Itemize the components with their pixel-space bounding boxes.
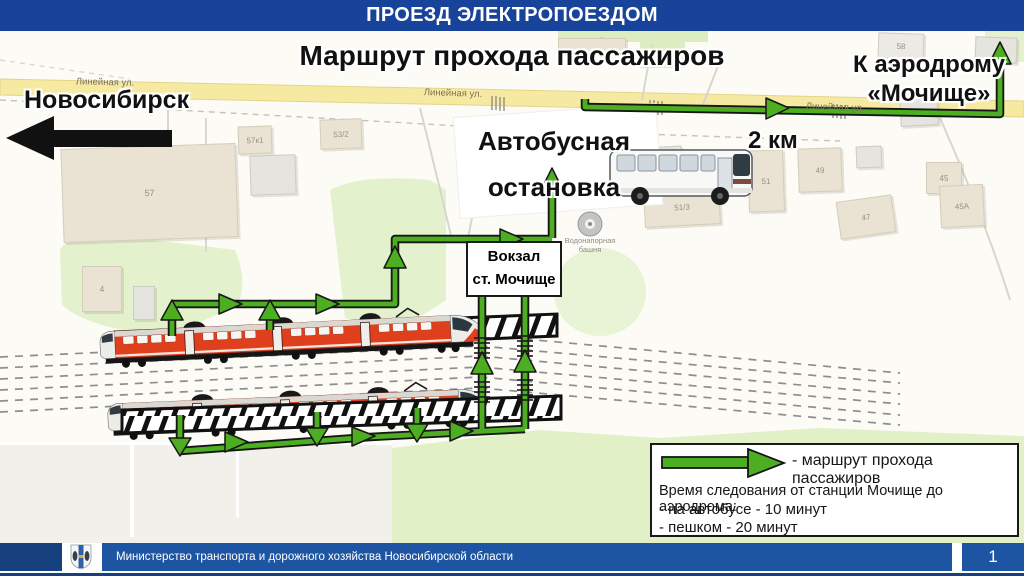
coat-of-arms-icon <box>68 544 94 570</box>
city-direction-label: Новосибирск <box>24 86 189 115</box>
bus-stop-line-2: остановка <box>458 164 650 210</box>
legend-route-arrow-icon <box>660 448 790 478</box>
legend-box: - маршрут прохода пассажиров Время следо… <box>650 443 1019 537</box>
street-name-label: Линейная ул. <box>790 100 880 114</box>
slide-header: ПРОЕЗД ЭЛЕКТРОПОЕЗДОМ <box>0 0 1024 31</box>
distance-label: 2 км <box>748 127 798 155</box>
footer-ministry-text: Министерство транспорта и дорожного хозя… <box>102 543 952 571</box>
map-title: Маршрут прохода пассажиров <box>262 40 762 72</box>
aerodrome-line-1: К аэродрому <box>843 50 1015 79</box>
slide-header-title: ПРОЕЗД ЭЛЕКТРОПОЕЗДОМ <box>366 4 658 27</box>
bus-stop-label: Автобусная остановка <box>458 118 650 210</box>
page-number: 1 <box>962 543 1024 571</box>
street-name-label: Линейная ул. <box>60 76 150 89</box>
legend-travel-time-walk: - пешком - 20 минут <box>659 519 798 536</box>
water-tower-label: Водонапорная башня <box>546 237 634 254</box>
aerodrome-direction-label: К аэродрому «Мочище» <box>843 50 1015 108</box>
bus-stop-line-1: Автобусная <box>458 118 650 164</box>
slide: 57 57к1 53/2 4 58 51/4 51/3 51 49 47 45 … <box>0 0 1024 576</box>
footer-left-block <box>0 543 62 571</box>
station-line-2: ст. Мочище <box>468 268 560 291</box>
legend-travel-time-bus: - на автобусе - 10 минут <box>659 501 827 518</box>
slide-footer: Министерство транспорта и дорожного хозя… <box>0 543 1024 576</box>
street-name-label: Линейная ул. <box>408 86 498 100</box>
water-tower-line-2: башня <box>546 246 634 255</box>
